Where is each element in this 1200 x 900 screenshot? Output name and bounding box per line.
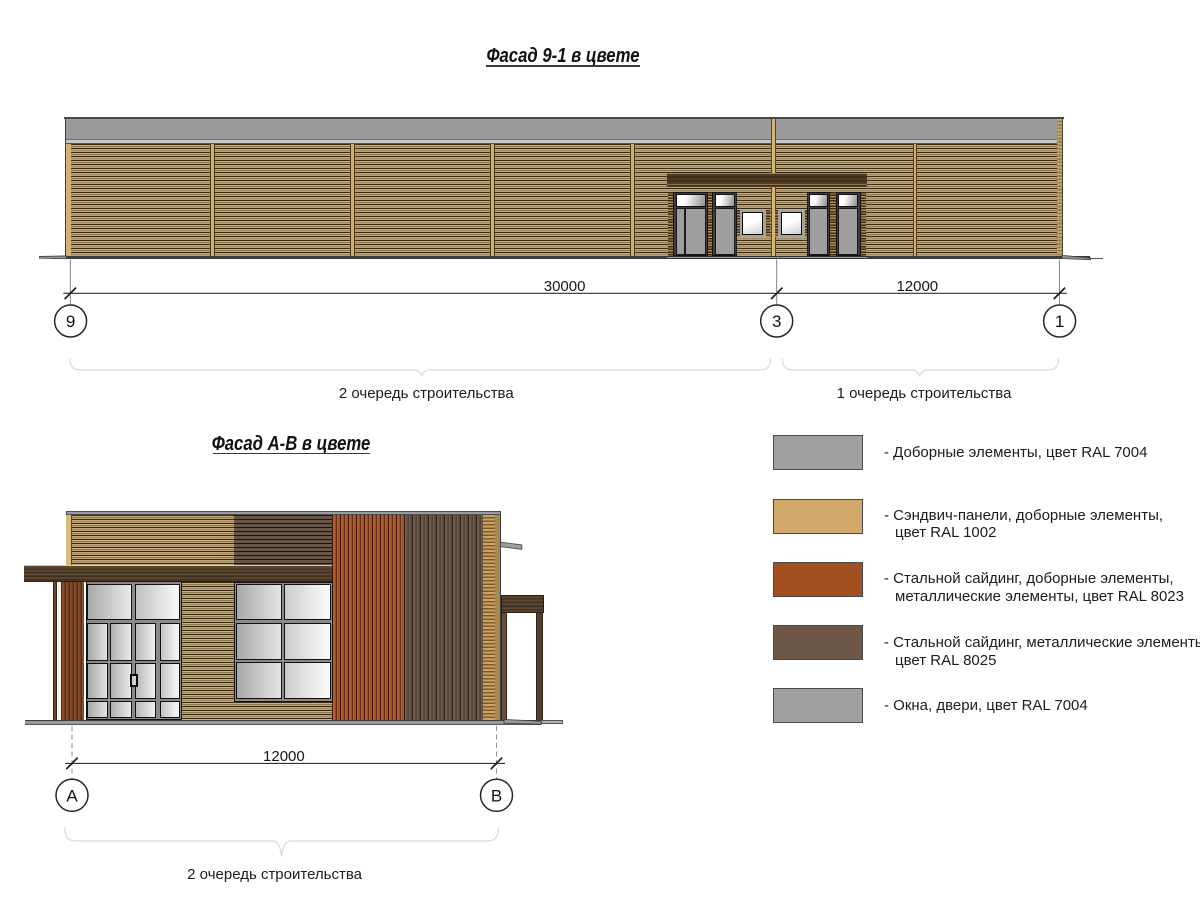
- svg-text:В: В: [491, 786, 502, 805]
- svg-text:1: 1: [1055, 312, 1064, 331]
- svg-text:30000: 30000: [544, 278, 586, 295]
- svg-text:А: А: [66, 786, 78, 805]
- svg-text:3: 3: [772, 312, 781, 331]
- svg-text:9: 9: [66, 312, 75, 331]
- svg-text:12000: 12000: [263, 748, 305, 765]
- svg-text:12000: 12000: [896, 278, 938, 295]
